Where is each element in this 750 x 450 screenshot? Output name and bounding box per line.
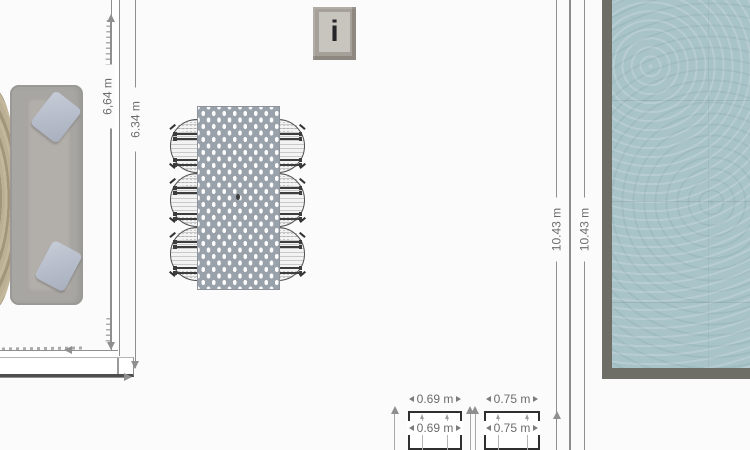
- dimension-label-row: 0.69 m: [407, 421, 463, 435]
- dimension-arrow: [471, 406, 479, 414]
- dimension-line-sofa-wall-outer: [135, 0, 136, 368]
- chair-tick: [169, 232, 175, 238]
- dimension-label: 6.34 m: [128, 88, 143, 152]
- dimension-arrow: [445, 414, 449, 419]
- wall-sign-panel: i: [319, 12, 350, 52]
- dining-table[interactable]: [197, 106, 280, 290]
- wall-band-divider: [117, 358, 119, 374]
- dimension-line-bottom: [0, 377, 125, 378]
- dim-arrow-left: [486, 425, 491, 431]
- wall-sign[interactable]: i: [313, 7, 356, 60]
- pool-border-left: [602, 0, 612, 379]
- dimension-label: 0.75 m: [494, 392, 531, 406]
- pool-water: [612, 0, 750, 368]
- dim-arrow-left: [409, 396, 414, 402]
- info-icon: i: [330, 17, 338, 47]
- dim-arrow-right: [533, 425, 538, 431]
- dimension-label: 10.43 m: [577, 198, 592, 262]
- dimension-label-row: 0.69 m: [406, 392, 464, 406]
- guide-line: [394, 413, 395, 450]
- dimension-arrow: [553, 411, 561, 419]
- chair-tick: [169, 178, 175, 184]
- dimension-arrow: [420, 414, 424, 419]
- wall-line-pool[interactable]: [569, 0, 571, 450]
- guide-line: [475, 413, 476, 450]
- sofa[interactable]: [10, 85, 83, 305]
- dimension-label-row: 0.75 m: [483, 392, 541, 406]
- dimension-arrow: [124, 373, 132, 381]
- guide-line: [470, 413, 471, 450]
- chair-tick: [169, 124, 175, 130]
- dimension-arrow: [131, 361, 139, 369]
- dimension-label: 10.43 m: [549, 198, 564, 262]
- dimension-arrow: [391, 406, 399, 414]
- dimension-label: 0.69 m: [417, 392, 454, 406]
- dim-arrow-right: [533, 396, 538, 402]
- wall-bottom-band[interactable]: [0, 357, 134, 377]
- dimension-arrow: [525, 414, 529, 419]
- dimension-label: 0.69 m: [417, 421, 454, 435]
- dimension-arrow: [496, 414, 500, 419]
- dimension-label: 0.75 m: [494, 421, 531, 435]
- dimension-arrow: [107, 342, 115, 350]
- chair-tick: [299, 232, 305, 238]
- dim-arrow-left: [409, 425, 414, 431]
- dim-arrow-right: [456, 425, 461, 431]
- dimension-label: 6,64 m: [100, 65, 115, 129]
- dimension-label-row: 0.75 m: [484, 421, 540, 435]
- wall-vertical[interactable]: [111, 0, 120, 356]
- chair-tick: [299, 124, 305, 130]
- sketch-arrow-left: [64, 346, 72, 354]
- dim-arrow-right: [456, 396, 461, 402]
- pool-border-bottom: [602, 368, 750, 379]
- dimension-arrow: [107, 14, 115, 22]
- chair-tick: [299, 178, 305, 184]
- floorplan-canvas[interactable]: 6,64 m 6.34 m i: [0, 0, 750, 450]
- table-centerpiece: [236, 194, 240, 200]
- dim-arrow-left: [486, 396, 491, 402]
- pool[interactable]: [602, 0, 750, 379]
